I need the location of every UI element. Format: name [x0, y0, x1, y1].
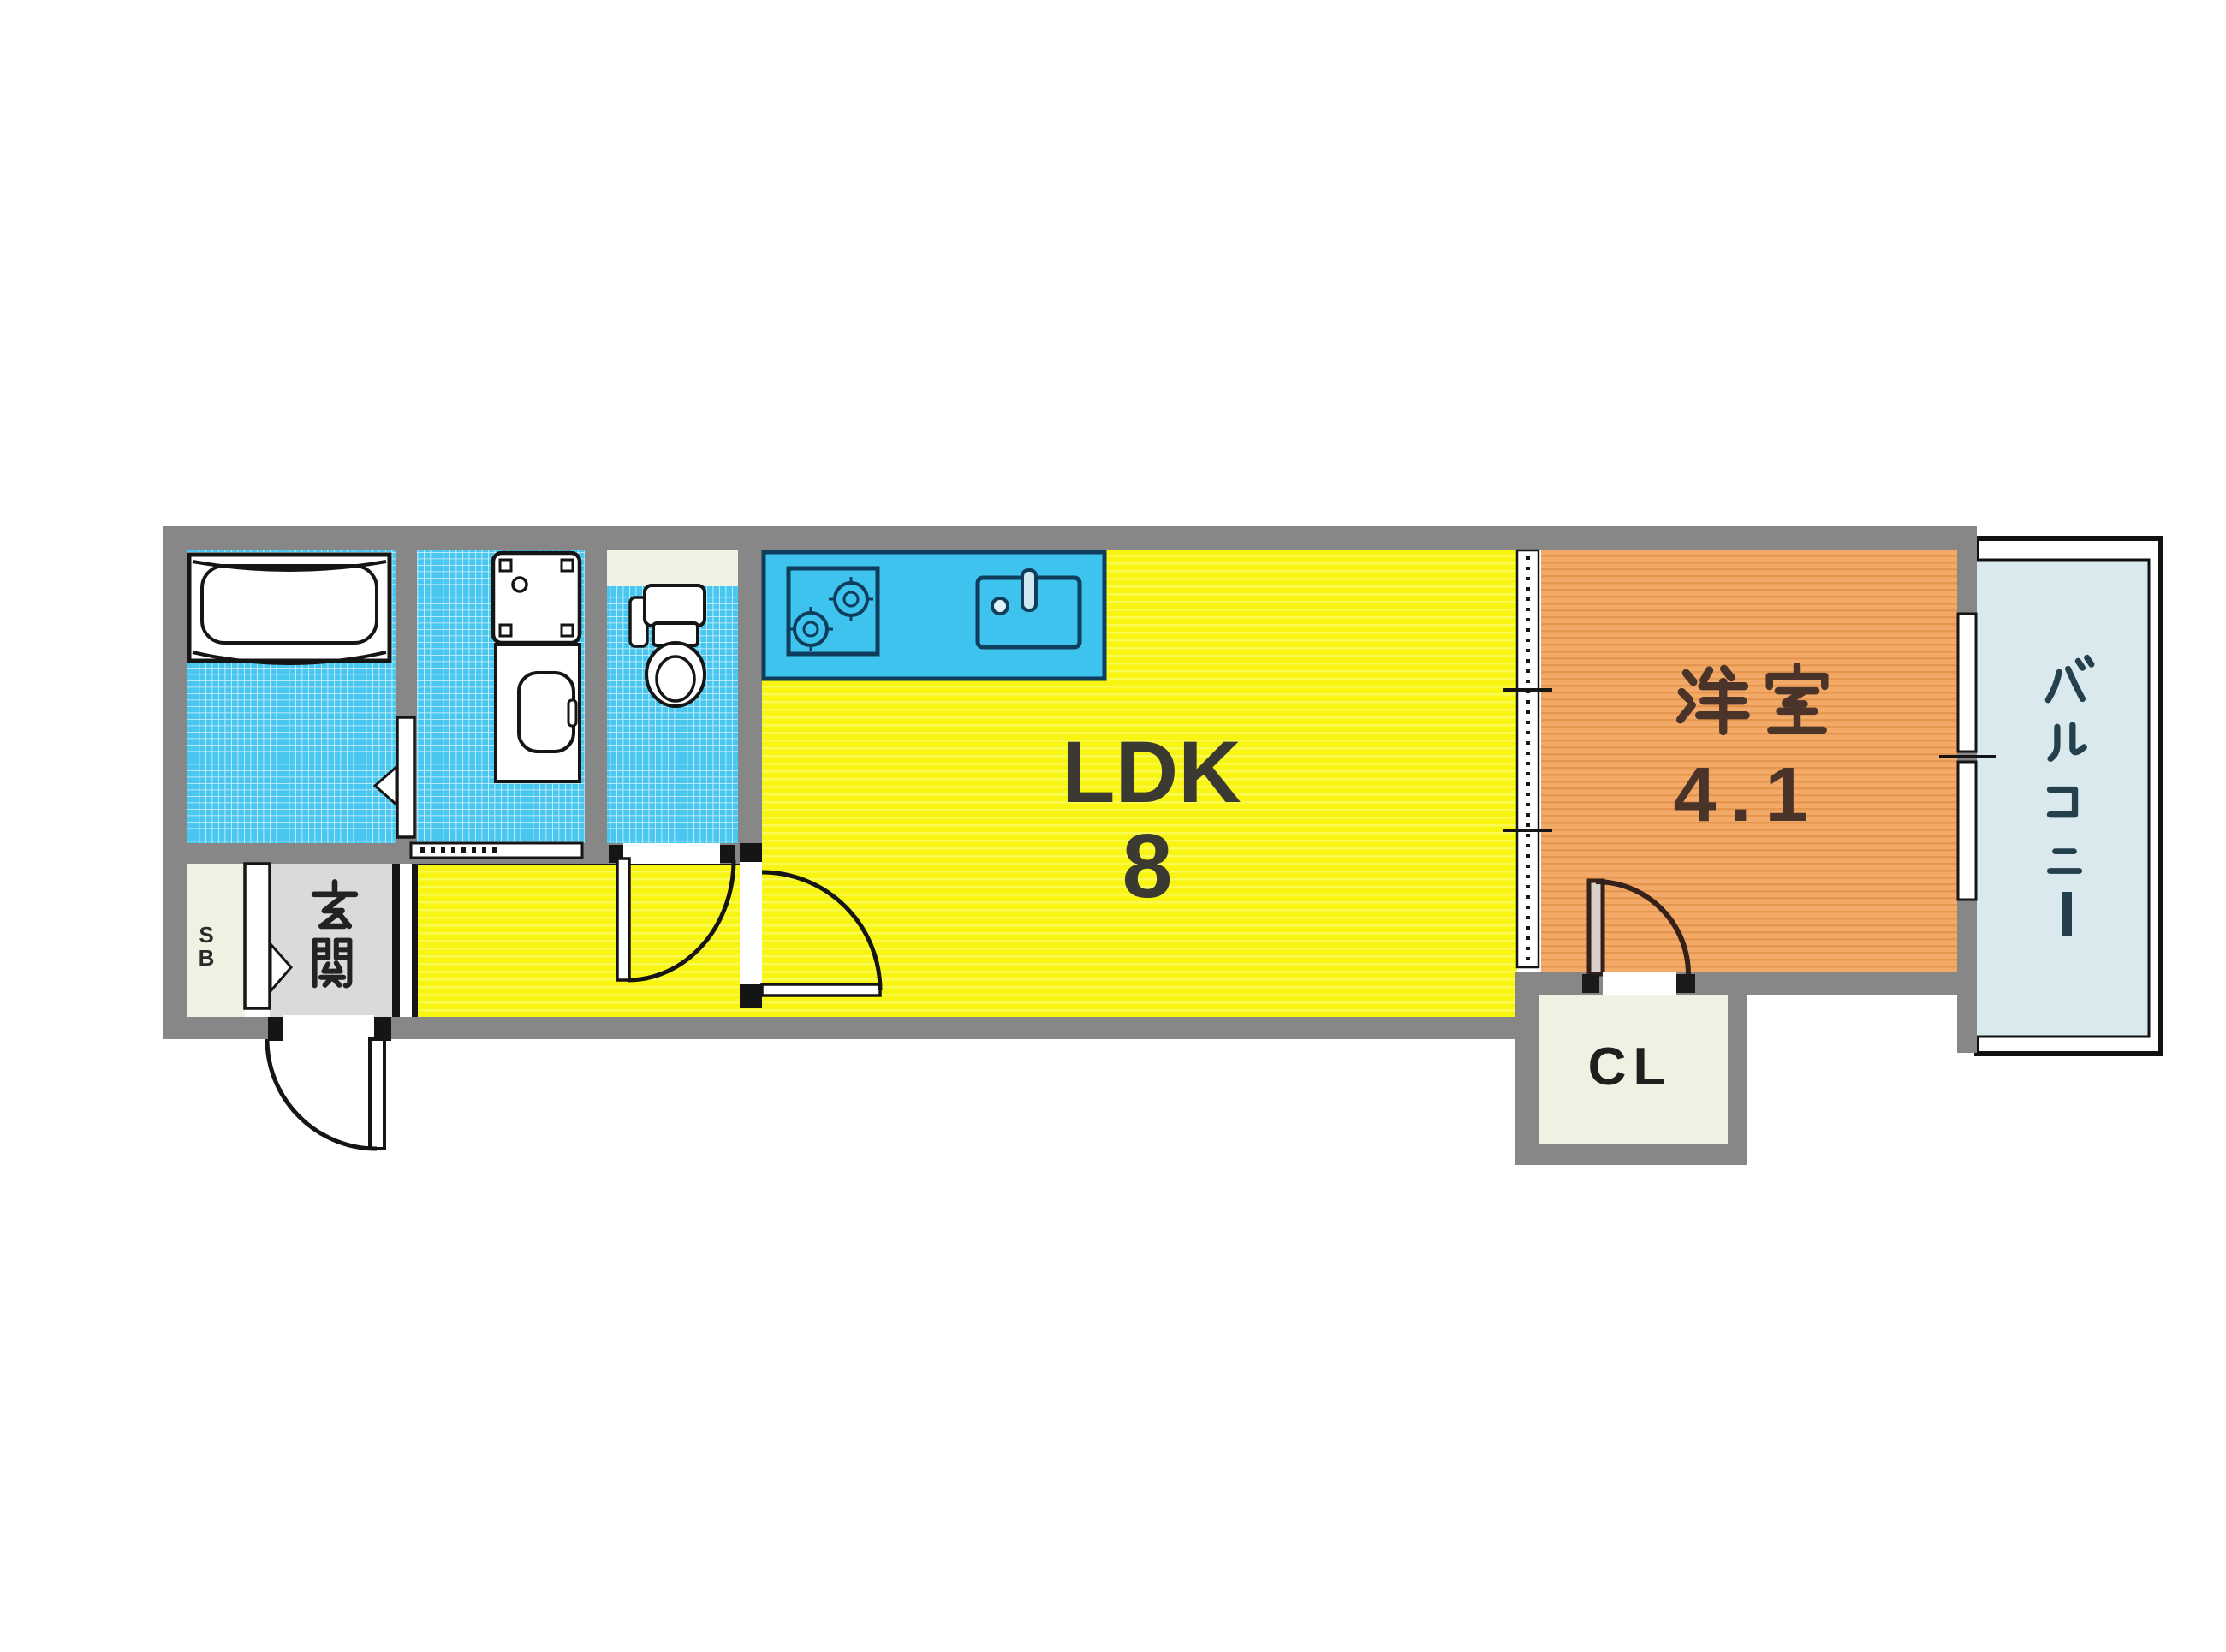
- svg-text:8: 8: [1122, 816, 1173, 917]
- svg-text:CL: CL: [1588, 1037, 1673, 1096]
- svg-text:S: S: [199, 922, 213, 948]
- svg-text:B: B: [199, 945, 215, 971]
- svg-text:4.1: 4.1: [1673, 752, 1821, 838]
- svg-text:LDK: LDK: [1062, 723, 1241, 821]
